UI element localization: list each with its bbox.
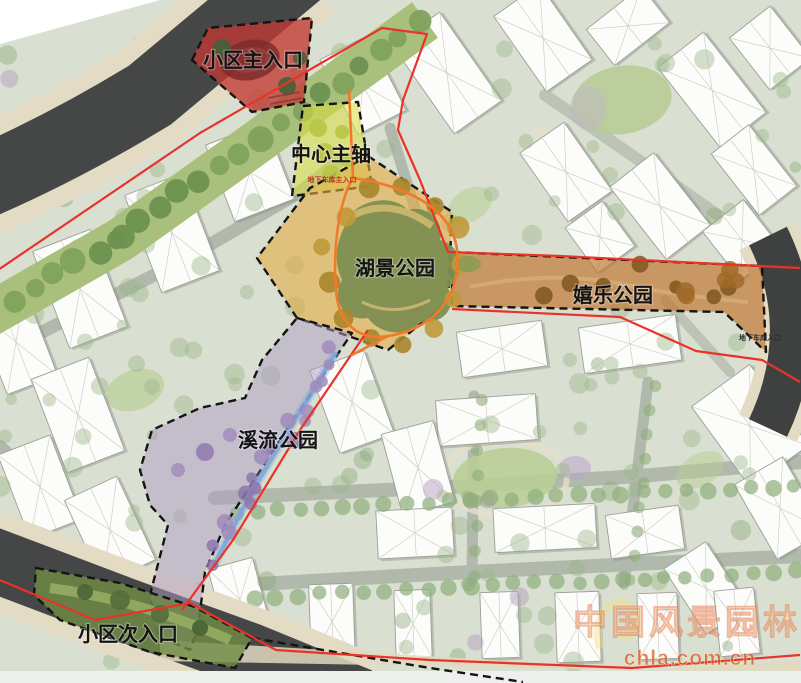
- tree: [361, 380, 381, 400]
- tree: [484, 186, 499, 201]
- tree: [395, 613, 411, 629]
- tree: [706, 208, 723, 225]
- tree: [469, 545, 481, 557]
- tree: [657, 571, 670, 584]
- tree: [586, 140, 599, 153]
- tree: [126, 209, 150, 233]
- label-main-entrance: 小区主入口: [203, 48, 303, 72]
- tree: [538, 606, 557, 625]
- tree: [304, 477, 321, 494]
- tree: [376, 140, 394, 158]
- tree: [638, 477, 650, 489]
- tree: [245, 193, 263, 211]
- tree: [574, 422, 588, 436]
- tree: [632, 526, 644, 538]
- tree: [332, 72, 354, 94]
- tree: [60, 248, 86, 274]
- tree: [375, 496, 391, 512]
- tree: [223, 428, 237, 442]
- tree: [471, 520, 483, 532]
- tree: [623, 574, 635, 586]
- tree: [683, 430, 701, 448]
- tree: [678, 288, 695, 305]
- tree: [314, 501, 330, 517]
- tree: [280, 413, 296, 429]
- tree: [117, 320, 128, 331]
- tree: [747, 566, 761, 580]
- tree: [765, 565, 782, 582]
- tree: [144, 379, 160, 395]
- tree: [171, 463, 185, 477]
- tree: [518, 134, 533, 149]
- tree: [549, 195, 561, 207]
- tree: [633, 364, 648, 379]
- label-secondary-entrance: 小区次入口: [78, 622, 178, 646]
- tree: [4, 291, 26, 313]
- tree: [350, 57, 369, 76]
- tree: [638, 573, 652, 587]
- tree: [249, 482, 262, 495]
- tree: [563, 651, 584, 672]
- tree: [591, 357, 605, 371]
- tree: [723, 203, 737, 217]
- tree: [605, 370, 620, 385]
- tree: [505, 575, 520, 590]
- tree: [266, 590, 283, 607]
- tree: [323, 359, 334, 370]
- tree: [210, 156, 229, 175]
- tree: [790, 161, 801, 172]
- offsite-bottom: [0, 671, 801, 683]
- tree: [43, 393, 56, 406]
- tree: [400, 496, 415, 511]
- tree: [440, 580, 456, 596]
- tree: [399, 582, 413, 596]
- tree: [41, 262, 63, 284]
- tree: [472, 469, 484, 481]
- tree: [228, 377, 242, 391]
- tree: [725, 568, 739, 582]
- garage-side-entrance-note: 地下车库入口: [739, 333, 781, 342]
- masterplan-canvas: 地下车库主入口 地下车库入口 小区主入口 中心主轴 湖景公园 嬉乐公园 溪流公园…: [0, 0, 801, 683]
- tree: [451, 516, 470, 535]
- tree: [629, 550, 641, 562]
- tree: [577, 530, 596, 549]
- tree: [62, 457, 83, 478]
- tree: [491, 78, 511, 98]
- label-lake-park: 湖景公园: [355, 257, 435, 280]
- tree: [729, 273, 744, 288]
- tree: [570, 486, 587, 503]
- tree: [416, 600, 432, 616]
- tree: [633, 501, 645, 513]
- tree: [313, 238, 330, 255]
- tree: [623, 464, 639, 480]
- watermark-url: chla.com.cn: [624, 647, 756, 670]
- tree: [422, 583, 436, 597]
- tree: [246, 472, 257, 483]
- tree: [482, 490, 498, 506]
- tree: [174, 395, 194, 415]
- tree: [573, 577, 586, 590]
- tree: [533, 425, 547, 439]
- tree: [563, 353, 577, 367]
- tree: [240, 285, 254, 299]
- tree: [742, 467, 756, 481]
- tree: [399, 640, 414, 655]
- tree: [694, 49, 714, 69]
- tree: [602, 167, 618, 183]
- tree: [422, 497, 436, 511]
- tree: [773, 72, 788, 87]
- tree: [332, 475, 350, 493]
- tree: [510, 533, 529, 552]
- tree: [196, 443, 214, 461]
- tree: [6, 394, 17, 405]
- tree: [648, 37, 662, 51]
- tree: [680, 483, 693, 496]
- tree: [335, 585, 349, 599]
- tree: [409, 10, 432, 33]
- tree: [77, 334, 93, 350]
- label-stream-park: 溪流公园: [238, 428, 318, 452]
- tree: [723, 483, 738, 498]
- tree: [463, 579, 480, 596]
- tree: [165, 179, 189, 203]
- tree: [207, 540, 219, 552]
- tree: [356, 585, 371, 600]
- tree: [657, 54, 675, 72]
- tree: [731, 520, 752, 541]
- tree: [658, 484, 672, 498]
- tree: [591, 488, 606, 503]
- tree: [700, 483, 717, 500]
- tree: [700, 569, 714, 583]
- tree: [787, 479, 800, 492]
- tree: [26, 279, 45, 298]
- tree: [604, 357, 619, 372]
- tree: [486, 578, 500, 592]
- tree: [527, 575, 541, 589]
- tree: [257, 571, 276, 590]
- tree: [496, 41, 513, 58]
- tree: [584, 378, 597, 391]
- tree: [744, 480, 758, 494]
- tree: [528, 489, 544, 505]
- tree: [641, 429, 653, 441]
- tree: [270, 501, 285, 516]
- tree: [678, 571, 691, 584]
- tree: [149, 196, 171, 218]
- tree: [170, 338, 190, 358]
- tree: [294, 503, 308, 517]
- tree: [437, 546, 454, 563]
- tree: [469, 570, 481, 582]
- tree: [442, 492, 457, 507]
- tree: [639, 453, 651, 465]
- tree: [248, 126, 274, 152]
- tree: [150, 162, 166, 178]
- tree: [475, 419, 487, 431]
- tree: [312, 586, 326, 600]
- tree: [505, 492, 519, 506]
- tree: [467, 634, 483, 650]
- road-right: [768, 236, 791, 428]
- tree: [75, 428, 91, 444]
- tree: [569, 560, 586, 577]
- tree: [0, 70, 18, 88]
- tree: [130, 284, 148, 302]
- tree: [353, 498, 370, 515]
- tree: [187, 170, 210, 193]
- tree: [125, 514, 143, 532]
- tree: [607, 203, 625, 221]
- tree: [555, 463, 570, 478]
- tree: [765, 480, 782, 497]
- tree: [534, 634, 554, 654]
- tree: [471, 444, 483, 456]
- tree: [734, 455, 748, 469]
- tree: [128, 355, 145, 372]
- tree: [191, 256, 210, 275]
- tree: [612, 487, 629, 504]
- tree: [510, 587, 529, 606]
- tree: [335, 499, 351, 515]
- tree: [91, 377, 109, 395]
- site-plan: 地下车库主入口 地下车库入口 小区主入口 中心主轴 湖景公园 嬉乐公园 溪流公园…: [0, 0, 801, 683]
- label-play-park: 嬉乐公园: [573, 283, 653, 307]
- tree: [516, 607, 532, 623]
- tree: [471, 495, 483, 507]
- tree: [644, 404, 656, 416]
- tree: [322, 340, 336, 354]
- garage-main-entrance-note: 地下车库主入口: [308, 175, 357, 184]
- tree: [706, 289, 721, 304]
- tree: [649, 380, 661, 392]
- tree: [360, 447, 374, 461]
- tree: [522, 225, 542, 245]
- tree: [548, 488, 563, 503]
- tree: [107, 230, 126, 249]
- tree: [535, 287, 553, 305]
- tree: [310, 380, 323, 393]
- tree: [476, 394, 488, 406]
- tree: [394, 336, 411, 353]
- tree: [290, 589, 306, 605]
- tree: [756, 129, 770, 143]
- tree: [632, 256, 649, 273]
- tree: [310, 82, 331, 103]
- label-central-axis: 中心主轴: [291, 142, 371, 166]
- tree: [423, 479, 444, 500]
- tree: [376, 584, 392, 600]
- tree: [272, 114, 290, 132]
- tree: [549, 574, 565, 590]
- tree: [594, 574, 610, 590]
- watermark-site-name: 中国风景园林网: [573, 604, 801, 642]
- tree: [228, 143, 250, 165]
